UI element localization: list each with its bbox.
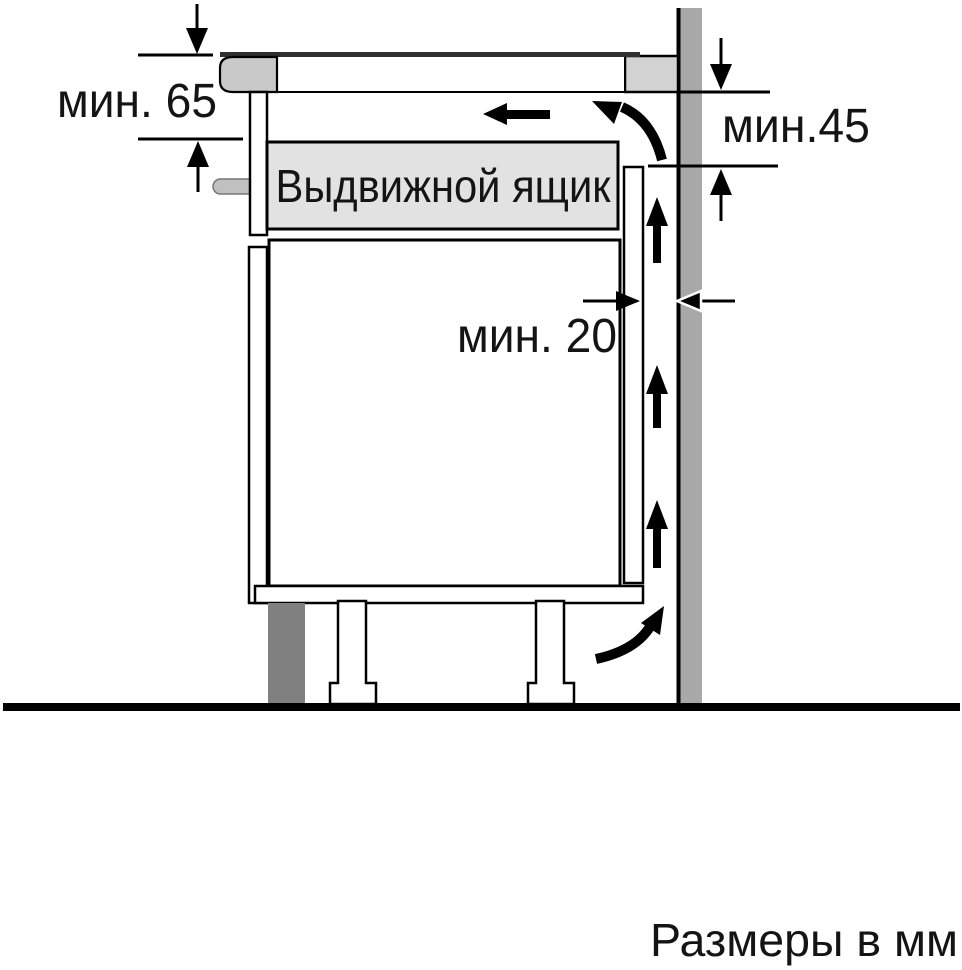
cabinet-leg-left: [330, 601, 376, 704]
min20-label: мин. 20: [457, 310, 617, 363]
airflow-arrow-up-1-icon: [646, 197, 668, 263]
floor-line: [3, 703, 960, 711]
airflow-arrow-curved-bottom-icon: [596, 606, 664, 659]
min45-label: мин.45: [722, 100, 870, 153]
airflow-curve-top-head: [592, 101, 622, 124]
airflow-up3-shaft: [653, 527, 661, 568]
min65-up-arrow-icon: [187, 141, 209, 167]
drawer-handle: [213, 179, 255, 194]
cabinet-leg-right: [528, 601, 574, 704]
airflow-up1-shaft: [653, 224, 661, 263]
airflow-left-head: [483, 103, 507, 125]
min65-label: мин. 65: [57, 75, 217, 128]
airflow-up2-shaft: [653, 392, 661, 428]
airflow-up3-head: [646, 500, 668, 529]
airflow-arrow-up-3-icon: [646, 500, 668, 568]
airflow-up1-head: [646, 197, 668, 226]
installation-diagram: Выдвижной ящик мин. 65 мин.45: [0, 0, 962, 970]
airflow-arrow-left-icon: [483, 103, 550, 125]
wall-border: [677, 8, 681, 703]
min45-up-arrow-icon: [710, 169, 732, 195]
wall-fill: [680, 8, 702, 703]
countertop-section: [625, 56, 678, 92]
airflow-arrow-up-2-icon: [646, 365, 668, 428]
cabinet-back-panel: [624, 167, 643, 583]
airflow-up2-head: [646, 365, 668, 394]
cabinet-front-panel: [249, 247, 267, 603]
drawer-label: Выдвижной ящик: [276, 160, 612, 212]
units-note: Размеры в мм: [650, 914, 958, 966]
cabinet-compartment: [269, 240, 620, 586]
airflow-curve-top-path: [622, 107, 662, 160]
drawer-front-panel: [250, 92, 267, 235]
hob-glass-surface: [220, 52, 640, 57]
min45-down-arrow-icon: [710, 64, 732, 90]
cabinet-bottom-shelf: [255, 586, 643, 603]
hob-body: [277, 56, 625, 92]
installation-diagram-page: Выдвижной ящик мин. 65 мин.45: [0, 0, 962, 970]
dimension-min65: мин. 65: [57, 4, 243, 192]
min65-down-arrow-icon: [186, 28, 208, 54]
hob-front-edge: [220, 57, 277, 92]
airflow-left-shaft: [504, 110, 550, 119]
cabinet-plinth: [268, 603, 305, 704]
wall: [677, 8, 703, 703]
airflow-curve-bottom-path: [596, 625, 651, 659]
